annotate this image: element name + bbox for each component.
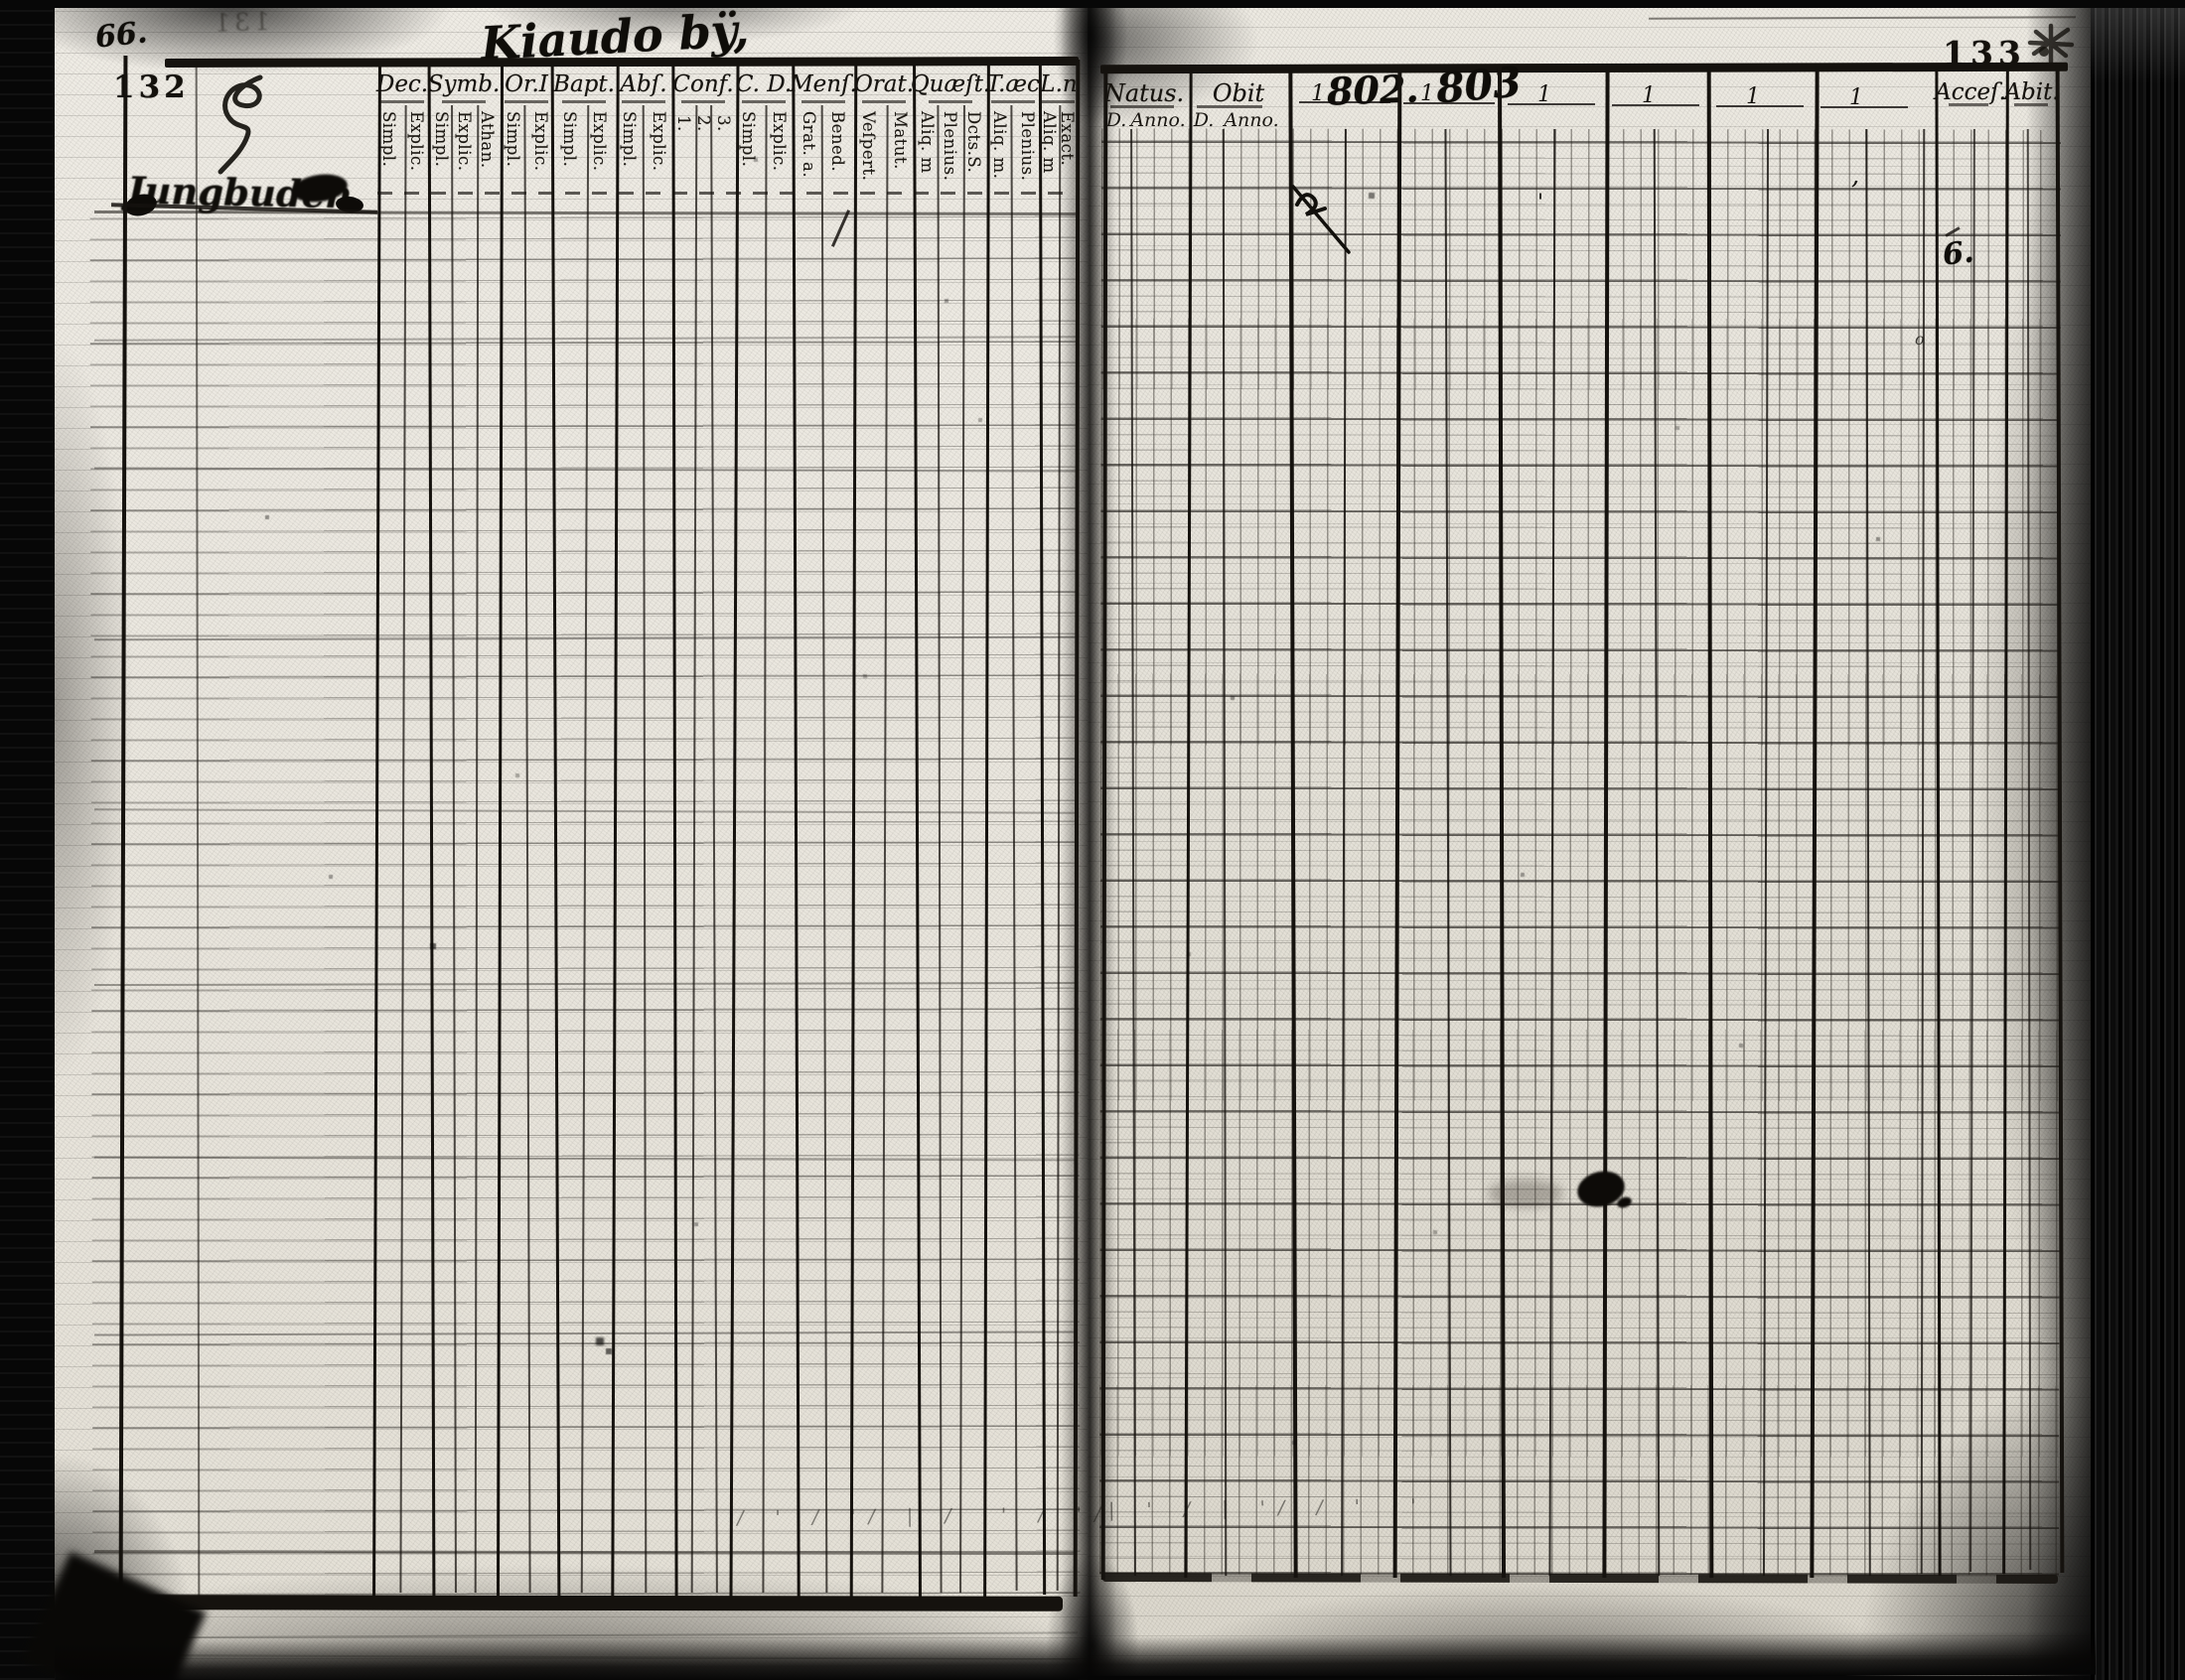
ink-tick-year6: , <box>1851 161 1859 191</box>
year-underline <box>1821 106 1908 108</box>
col-header-taec: T.æc <box>986 71 1040 97</box>
ink-scribble-corner <box>2026 22 2078 68</box>
ink-flourish <box>199 73 298 175</box>
sub-mens-bened: Bened. <box>828 111 847 172</box>
col-header-obit: Obit <box>1213 79 1264 107</box>
header-dash <box>380 100 424 103</box>
sub-abs-explic: Explic. <box>650 111 668 171</box>
ledger-scan: 66. 131 132 Kiaudo bÿ, Jungbuden Dec. Sy… <box>0 0 2185 1680</box>
sub-orat-matut: Matut. <box>891 111 910 170</box>
sub-ori-simpl: Simpl. <box>504 111 522 167</box>
sub-taec-plenius: Plenius. <box>1018 111 1037 181</box>
subheader-dash-rule <box>377 192 1075 195</box>
col-header-natus: Natus. <box>1104 79 1184 107</box>
header-dash <box>1197 105 1262 108</box>
col-header-bapt: Bapt. <box>553 71 615 97</box>
col-header-orat: Orat. <box>854 71 914 97</box>
col-header-mens: Menſ. <box>790 71 857 97</box>
header-dash <box>2014 103 2048 106</box>
col-header-or-i: Or.I <box>505 71 548 97</box>
sub-conf-1: 1. <box>674 115 693 132</box>
header-dash <box>742 100 786 103</box>
smudge <box>1488 1180 1563 1207</box>
col-header-symb: Symb. <box>428 71 501 97</box>
header-dash <box>562 100 606 103</box>
sub-dec-simpl: Simpl. <box>379 111 398 167</box>
sub-orat-vespert: Veſpert. <box>859 111 878 181</box>
dust-specks <box>0 0 2 2</box>
header-dash <box>929 100 972 103</box>
col-header-quaest: Quæſt. <box>911 71 990 97</box>
sub-quaest-aliq: Aliq. m <box>918 111 937 174</box>
col-header-conf: Conf. <box>672 71 733 97</box>
acces-small-mark: o <box>1915 330 1925 349</box>
sub-symb-explic: Explic. <box>455 111 474 171</box>
sub-mens-grat: Grat. a. <box>800 111 818 178</box>
header-dash <box>442 100 486 103</box>
sub-abs-simpl: Simpl. <box>620 111 639 167</box>
year-underline <box>1403 102 1495 104</box>
left-bottom-rule <box>139 1595 1063 1611</box>
tally-marks-left: / ' / '/ | / '' / '/ <box>737 1503 1113 1529</box>
year1-handwritten: 802. <box>1326 66 1419 113</box>
tally-marks-right: | ' / | '/ / ' |' <box>1108 1495 1429 1522</box>
col-header-ln: L.n <box>1040 71 1077 97</box>
year-underline <box>1299 101 1390 103</box>
sub-symb-simpl: Simpl. <box>432 111 451 167</box>
sub-ori-explic: Explic. <box>531 111 550 171</box>
header-dash <box>1949 103 1988 106</box>
sub-bapt-simpl: Simpl. <box>560 111 579 167</box>
sub-dec-explic: Explic. <box>407 111 426 171</box>
header-dash <box>505 100 548 103</box>
header-dash <box>1041 100 1075 103</box>
sub-cd-explic: Explic. <box>770 111 789 171</box>
sub-symb-athan: Athan. <box>478 111 497 169</box>
sub-cd-simpl: Simpl. <box>739 111 758 167</box>
col-header-cd: C. D. <box>736 71 792 97</box>
year-underline <box>1508 103 1595 105</box>
header-dash <box>622 100 665 103</box>
col-header-dec: Dec. <box>376 71 428 97</box>
col-header-acces: Acceſ. <box>1935 79 2006 105</box>
ghost-folio-showthrough: 131 <box>211 7 271 38</box>
sub-quaest-dcts: Dcts.S. <box>964 111 983 173</box>
ink-tick-year3: ' <box>1537 191 1543 215</box>
header-dash <box>991 100 1035 103</box>
sub-conf-3: 3. <box>714 115 733 132</box>
scan-top-border <box>0 0 2185 8</box>
year-underline <box>1716 105 1804 107</box>
book-fore-edge <box>2091 0 2185 1680</box>
header-dash <box>862 100 906 103</box>
sub-ln-aliq: Aliq. m <box>1040 111 1059 174</box>
col-header-abit: Abit. <box>2004 79 2059 105</box>
header-dash <box>801 100 845 103</box>
sub-bapt-explic: Explic. <box>590 111 609 171</box>
sub-taec-aliq: Aliq. m. <box>990 111 1009 179</box>
header-dash <box>681 100 725 103</box>
sub-quaest-plenius: Plenius. <box>941 111 959 181</box>
scan-left-border <box>0 0 55 1680</box>
left-top-rule <box>165 57 1079 68</box>
col-header-abs: Abſ. <box>620 71 666 97</box>
corner-annotation: 66. <box>93 15 149 55</box>
year-underline <box>1612 104 1699 106</box>
acces-mark: 6. <box>1941 234 1975 272</box>
ink-mark-1802-column <box>1283 179 1361 256</box>
header-dash <box>1110 105 1174 108</box>
